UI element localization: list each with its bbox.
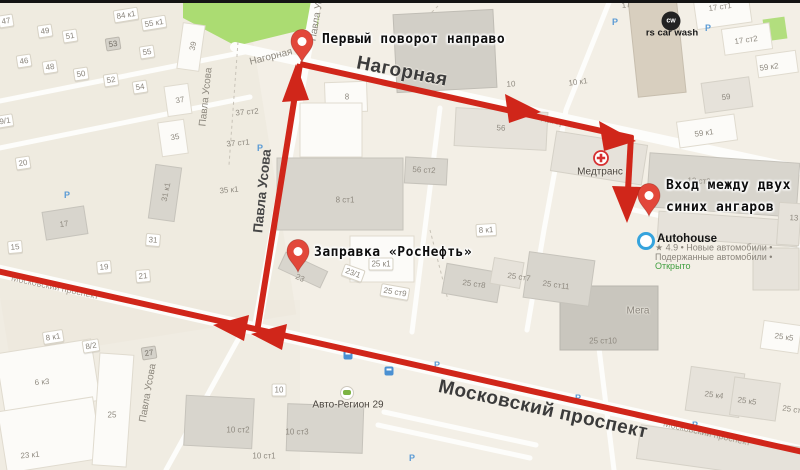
pin-first-turn[interactable] [291, 30, 313, 63]
screenshot-top-border [0, 0, 800, 3]
route-arrow-south [612, 186, 641, 223]
route-overlay [0, 0, 800, 470]
annotation-first-turn: Первый поворот направо [322, 32, 505, 47]
annotation-entrance-line2: синих ангаров [666, 200, 774, 215]
annotation-entrance-line1: Вход между двух [666, 178, 791, 193]
pin-gas-station[interactable] [287, 240, 309, 273]
route-arrow-north [282, 64, 309, 102]
pin-entrance[interactable] [638, 184, 660, 217]
annotation-gas-station: Заправка «РосНефть» [314, 245, 472, 260]
map-canvas[interactable]: 4784 к155 к14951535546485052549/13937352… [0, 0, 800, 470]
